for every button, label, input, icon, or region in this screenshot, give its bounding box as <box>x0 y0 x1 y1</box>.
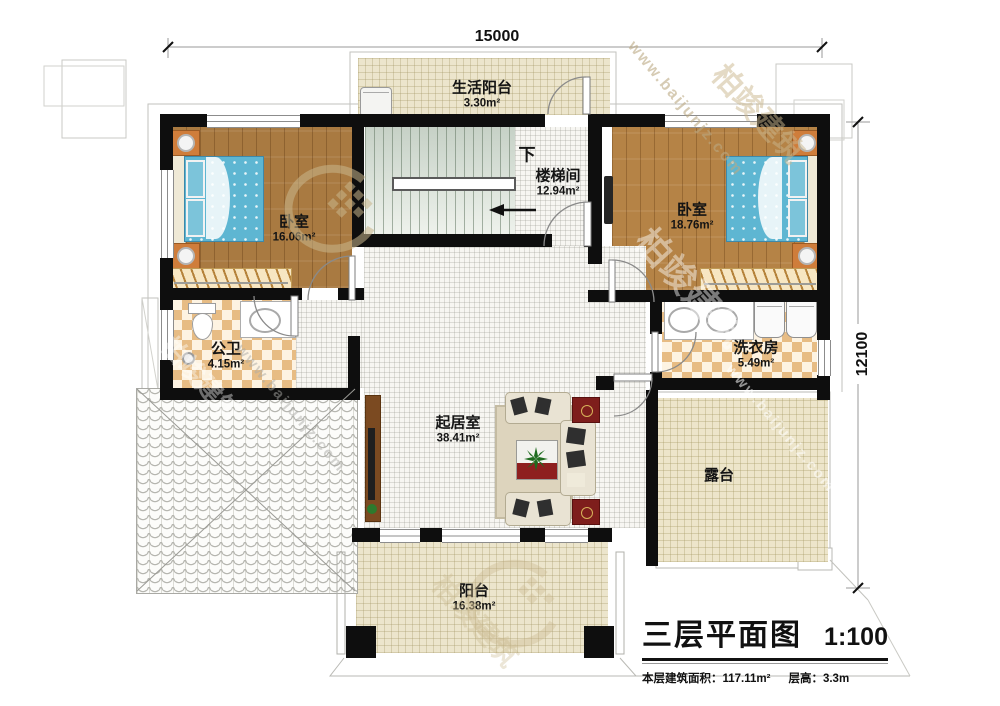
door-leaf <box>583 77 590 114</box>
watermark-logo <box>268 150 398 280</box>
room-label-bathroom: 公卫 4.15m² <box>208 341 244 370</box>
room-name: 露台 <box>704 468 734 485</box>
room-name: 起居室 <box>435 415 480 432</box>
dimension-width: 15000 <box>462 28 532 46</box>
room-area: 4.15m² <box>208 358 244 371</box>
room-name: 生活阳台 <box>452 80 512 97</box>
room-name: 楼梯间 <box>535 168 580 185</box>
title-block: 三层平面图 1:100 本层建筑面积：117.11m² 层高：3.3m <box>642 610 888 686</box>
floor-height-note: 层高：3.3m <box>788 670 849 686</box>
room-area: 38.41m² <box>435 432 480 445</box>
watermark-logo <box>450 545 580 675</box>
room-name: 卧室 <box>671 202 714 219</box>
room-label-life-balcony: 生活阳台 3.30m² <box>452 80 512 109</box>
title-underline-thin <box>642 663 888 664</box>
room-name: 公卫 <box>208 341 244 358</box>
room-area: 3.30m² <box>452 97 512 110</box>
room-label-laundry: 洗衣房 5.49m² <box>733 340 778 369</box>
plan-title: 三层平面图 <box>642 610 802 654</box>
room-area: 5.49m² <box>733 357 778 370</box>
dimension-height: 12100 <box>854 324 872 384</box>
floor-area-note: 本层建筑面积：117.11m² <box>642 670 770 686</box>
floor-plan-canvas: 生活阳台 3.30m² 下 楼梯间 12.94m² 卧室 16.06m² 卧室 … <box>0 0 1000 706</box>
room-label-living-room: 起居室 38.41m² <box>435 415 480 444</box>
room-label-terrace: 露台 <box>704 468 734 485</box>
stairs-down-arrow-icon <box>489 204 536 216</box>
room-area: 18.76m² <box>671 219 714 232</box>
room-area: 12.94m² <box>535 185 580 198</box>
title-underline <box>642 658 888 661</box>
room-label-bedroom-right: 卧室 18.76m² <box>671 202 714 231</box>
room-label-stairwell: 楼梯间 12.94m² <box>535 168 580 197</box>
room-name: 洗衣房 <box>733 340 778 357</box>
plan-scale: 1:100 <box>824 623 888 652</box>
stairs-direction-label: 下 <box>519 147 536 166</box>
